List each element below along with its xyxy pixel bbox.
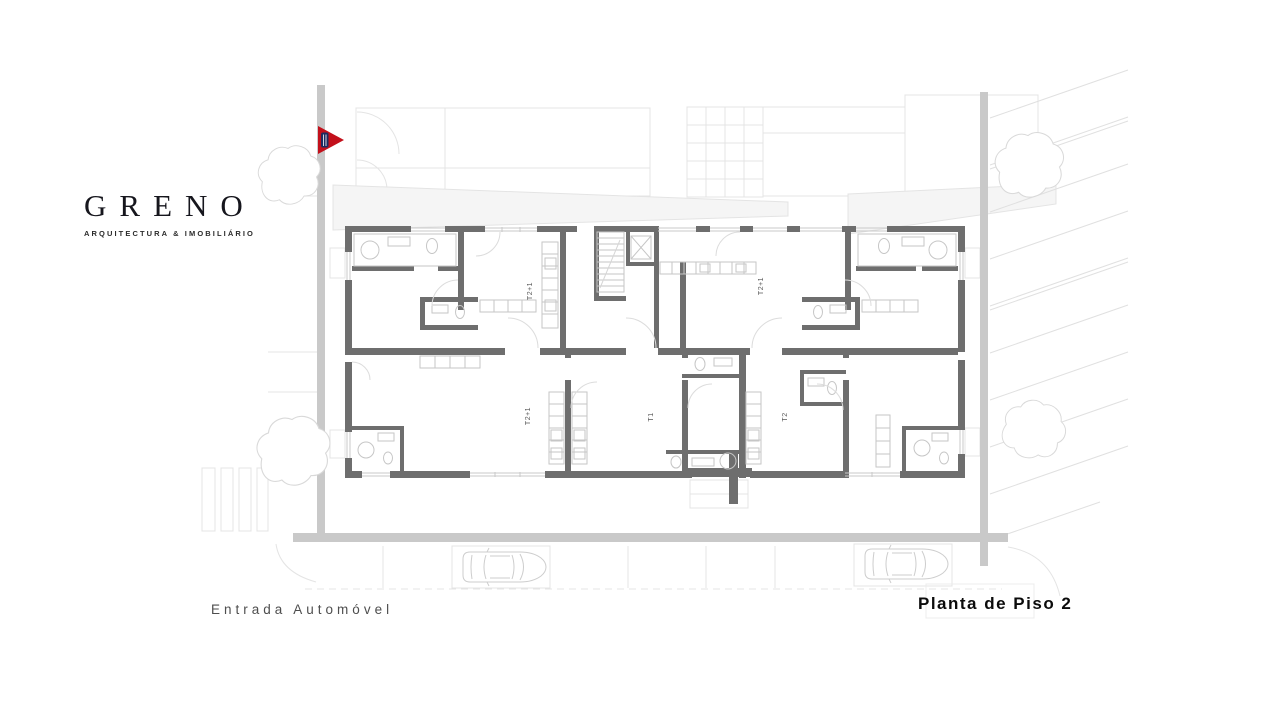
- unit-label: T2+1: [527, 282, 534, 300]
- tree-icon: [993, 390, 1074, 469]
- stairs-icon: [597, 232, 624, 292]
- car-icon: [865, 545, 948, 583]
- elevator-icon: [631, 236, 651, 259]
- floor-plan-drawing: T2+1 T2+1 T2+1 T1 T2: [0, 0, 1280, 720]
- unit-label: T2: [782, 412, 789, 421]
- tree-icon: [995, 133, 1063, 198]
- unit-label: T1: [648, 412, 655, 421]
- road-bottom: [293, 533, 1008, 542]
- unit-label: T2+1: [758, 277, 765, 295]
- location-flag-icon: [318, 126, 344, 154]
- car-entrance-caption: Entrada Automóvel: [211, 602, 393, 617]
- building-walls: [345, 226, 965, 504]
- car-icon: [463, 548, 546, 586]
- presentation-slide: T2+1 T2+1 T2+1 T1 T2 GRENO ARQUITECTURA …: [0, 0, 1280, 720]
- brand-logo: GRENO ARQUITECTURA & IMOBILIÁRIO: [84, 190, 304, 238]
- plan-title: Planta de Piso 2: [918, 594, 1072, 614]
- brand-tagline: ARQUITECTURA & IMOBILIÁRIO: [84, 229, 304, 238]
- crosswalk: [202, 468, 268, 531]
- unit-label: T2+1: [525, 407, 532, 425]
- road-right: [980, 92, 988, 566]
- door-arcs: [352, 232, 871, 410]
- trees: [257, 133, 1074, 486]
- brand-name: GRENO: [84, 190, 304, 221]
